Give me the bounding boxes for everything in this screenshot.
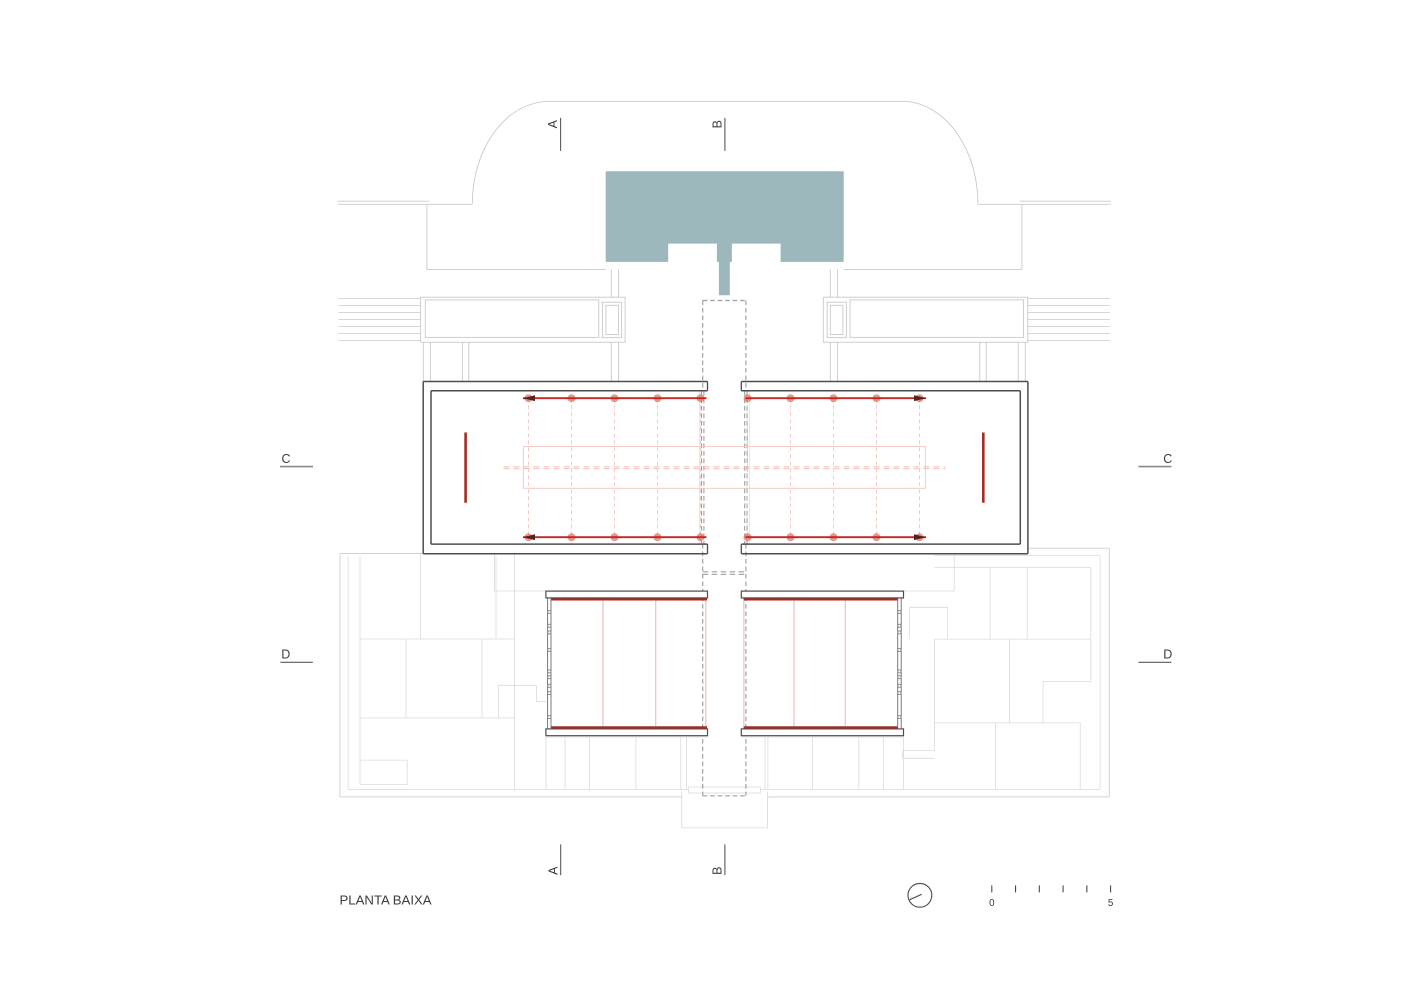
svg-text:A: A xyxy=(546,119,560,128)
svg-text:A: A xyxy=(546,866,560,875)
svg-text:D: D xyxy=(281,648,290,662)
svg-text:B: B xyxy=(710,120,724,128)
svg-text:C: C xyxy=(1163,452,1172,466)
svg-text:D: D xyxy=(1163,648,1172,662)
svg-text:0: 0 xyxy=(989,898,995,909)
svg-text:C: C xyxy=(281,452,290,466)
svg-text:PLANTA BAIXA: PLANTA BAIXA xyxy=(340,893,432,908)
svg-text:B: B xyxy=(711,867,725,875)
svg-text:5: 5 xyxy=(1108,898,1114,909)
